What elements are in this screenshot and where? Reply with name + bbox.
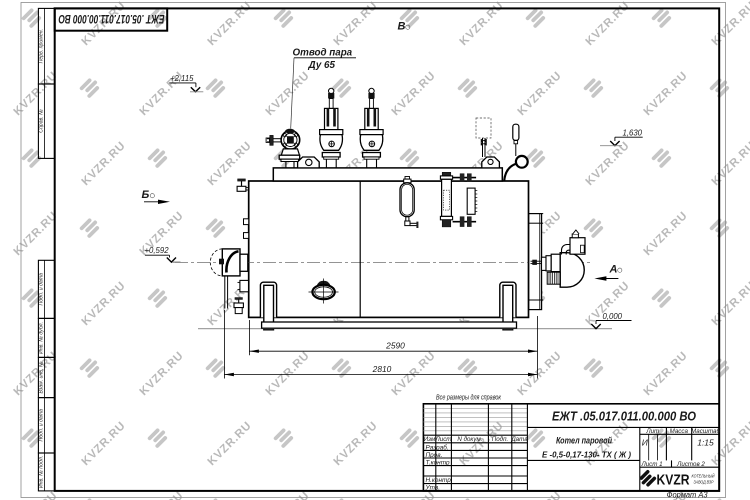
svg-text:Е -0,5-0,17-130- ТХ ( Ж ): Е -0,5-0,17-130- ТХ ( Ж ) bbox=[542, 449, 631, 459]
svg-text:2810: 2810 bbox=[372, 364, 392, 374]
svg-text:Перв. примен.: Перв. примен. bbox=[39, 29, 45, 63]
svg-text:Масса: Масса bbox=[670, 428, 689, 435]
svg-text:Б: Б bbox=[142, 189, 150, 201]
svg-text:ЗАВОД ВЗР: ЗАВОД ВЗР bbox=[694, 480, 715, 485]
svg-text:А: А bbox=[609, 264, 618, 276]
svg-text:Инв. № дубл.: Инв. № дубл. bbox=[39, 322, 45, 354]
svg-text:N докум.: N докум. bbox=[457, 436, 482, 443]
svg-text:Инв. № подл.: Инв. № подл. bbox=[39, 456, 45, 488]
svg-text:Справ. №: Справ. № bbox=[39, 109, 45, 133]
svg-text:+0,592: +0,592 bbox=[145, 246, 170, 255]
svg-text:Подп. и дата: Подп. и дата bbox=[39, 273, 45, 306]
svg-text:Листов 2: Листов 2 bbox=[676, 461, 705, 468]
svg-text:И: И bbox=[642, 438, 649, 448]
svg-text:Изм: Изм bbox=[424, 436, 436, 443]
svg-text:Формат А3: Формат А3 bbox=[667, 491, 709, 500]
svg-text:1,630: 1,630 bbox=[623, 128, 643, 137]
svg-text:Взам. инв. №: Взам. инв. № bbox=[39, 361, 45, 393]
svg-text:Пров.: Пров. bbox=[426, 452, 443, 459]
svg-text:Масштаб: Масштаб bbox=[691, 428, 720, 435]
svg-text:ЕЖТ .05.017.011.00.000 ВО: ЕЖТ .05.017.011.00.000 ВО bbox=[58, 12, 164, 24]
svg-text:Дата: Дата bbox=[510, 436, 528, 443]
svg-text:В: В bbox=[398, 21, 406, 33]
svg-text:Отвод пара: Отвод пара bbox=[293, 47, 353, 58]
svg-text:+2,115: +2,115 bbox=[170, 74, 194, 83]
svg-text:Т.контр: Т.контр bbox=[426, 460, 450, 467]
svg-text:КОТЕЛЬНЫЙ: КОТЕЛЬНЫЙ bbox=[692, 472, 716, 479]
svg-text:Ду 65: Ду 65 bbox=[308, 60, 336, 71]
svg-text:Котел паровой: Котел паровой bbox=[556, 436, 612, 446]
svg-text:2590: 2590 bbox=[385, 341, 405, 351]
svg-text:Лист: Лист bbox=[435, 436, 452, 443]
svg-text:Утв.: Утв. bbox=[425, 485, 441, 492]
svg-text:Н.контр: Н.контр bbox=[426, 477, 452, 484]
svg-text:Лист 1: Лист 1 bbox=[640, 461, 662, 468]
svg-text:Подп.: Подп. bbox=[492, 436, 508, 443]
svg-text:KVZR: KVZR bbox=[657, 472, 690, 489]
svg-text:1:15: 1:15 bbox=[697, 438, 714, 448]
svg-text:Лит: Лит bbox=[645, 428, 659, 435]
svg-text:Подп. и дата: Подп. и дата bbox=[39, 409, 45, 442]
svg-text:ЕЖТ .05.017.011.00.000 ВО: ЕЖТ .05.017.011.00.000 ВО bbox=[552, 409, 696, 424]
svg-text:0,000: 0,000 bbox=[603, 312, 623, 321]
svg-text:Разраб.: Разраб. bbox=[426, 443, 449, 451]
svg-text:Все размеры для справок: Все размеры для справок bbox=[436, 393, 501, 402]
